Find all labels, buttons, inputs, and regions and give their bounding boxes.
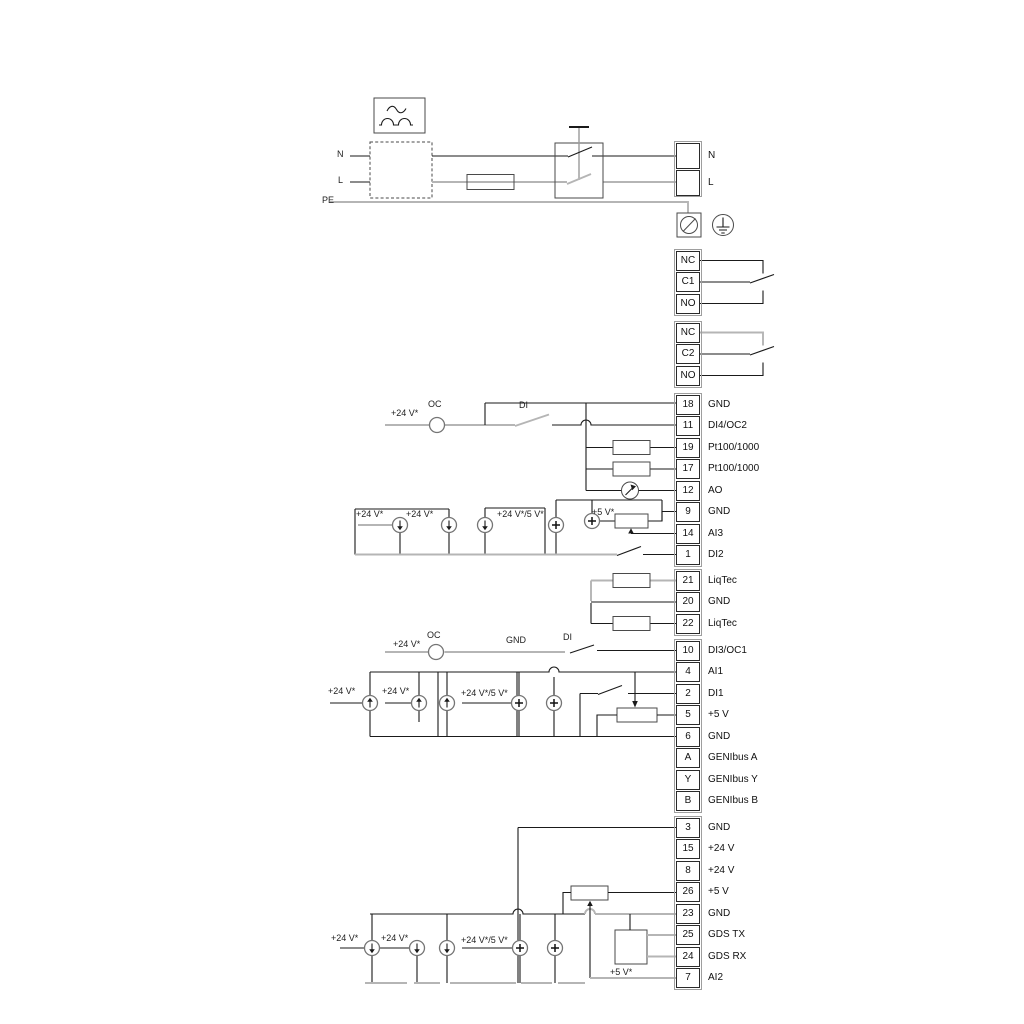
ai3-supply1-label: +24 V* <box>356 509 383 519</box>
ai1-supply3-label: +24 V*/5 V* <box>461 688 508 698</box>
ai2-supply1-label: +24 V* <box>331 933 358 943</box>
ai3-supply2-label: +24 V* <box>406 509 433 519</box>
l-input-label: L <box>338 175 343 185</box>
annotation-layer: NLPE+24 V*OCDI+24 V*+24 V*+24 V*/5 V*+5 … <box>0 0 1024 1024</box>
gnd-wire-label: GND <box>506 635 526 645</box>
di3-label: DI <box>563 632 572 642</box>
ai1-supply1-label: +24 V* <box>328 686 355 696</box>
ai2-supply2-label: +24 V* <box>381 933 408 943</box>
n-input-label: N <box>337 149 344 159</box>
gds-5v-label: +5 V* <box>610 967 632 977</box>
ai3-supply3-label: +24 V*/5 V* <box>497 509 544 519</box>
oc1-label: OC <box>427 630 441 640</box>
pe-label: PE <box>322 195 334 205</box>
ai2-supply3-label: +24 V*/5 V* <box>461 935 508 945</box>
ai3-5v-label: +5 V* <box>592 507 614 517</box>
di4-label: DI <box>519 400 528 410</box>
oc2-supply-label: +24 V* <box>391 408 418 418</box>
oc1-supply-label: +24 V* <box>393 639 420 649</box>
wiring-diagram: NLNCC1NONCC2NO18GND11DI4/OC219Pt100/1000… <box>0 0 1024 1024</box>
oc2-label: OC <box>428 399 442 409</box>
ai1-supply2-label: +24 V* <box>382 686 409 696</box>
